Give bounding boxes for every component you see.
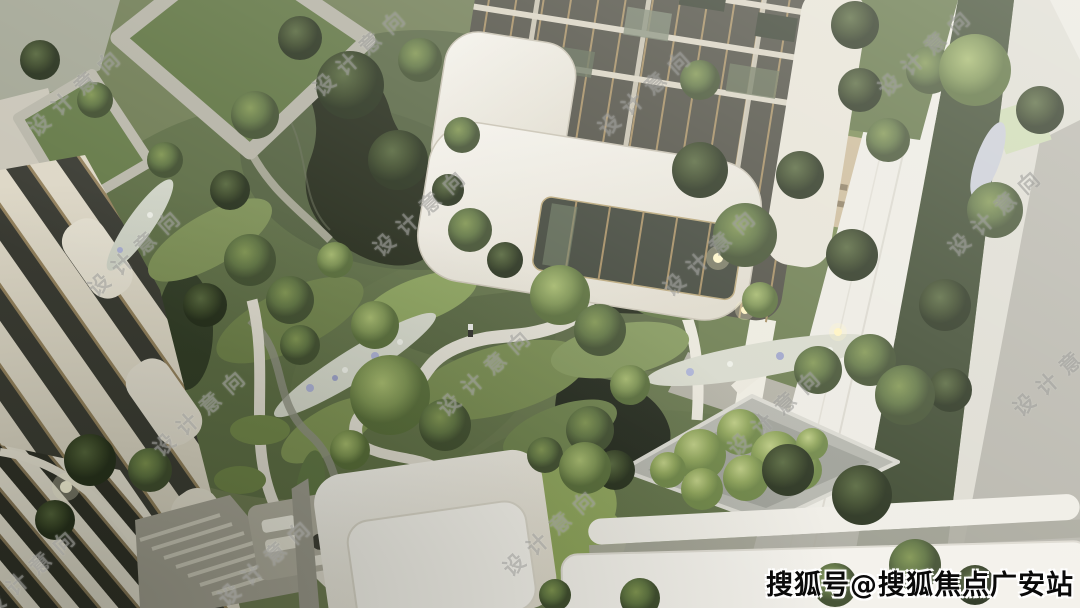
credit-watermark: 搜狐号@搜狐焦点广安站 <box>766 563 1074 602</box>
aerial-rendering-screenshot: 设计意向 设计意向 设计意向 设计意向 设计意向 设计意向 设计意向 设计意向 … <box>0 0 1080 608</box>
aerial-scene <box>0 0 1080 608</box>
corner-vignette <box>0 0 1080 608</box>
